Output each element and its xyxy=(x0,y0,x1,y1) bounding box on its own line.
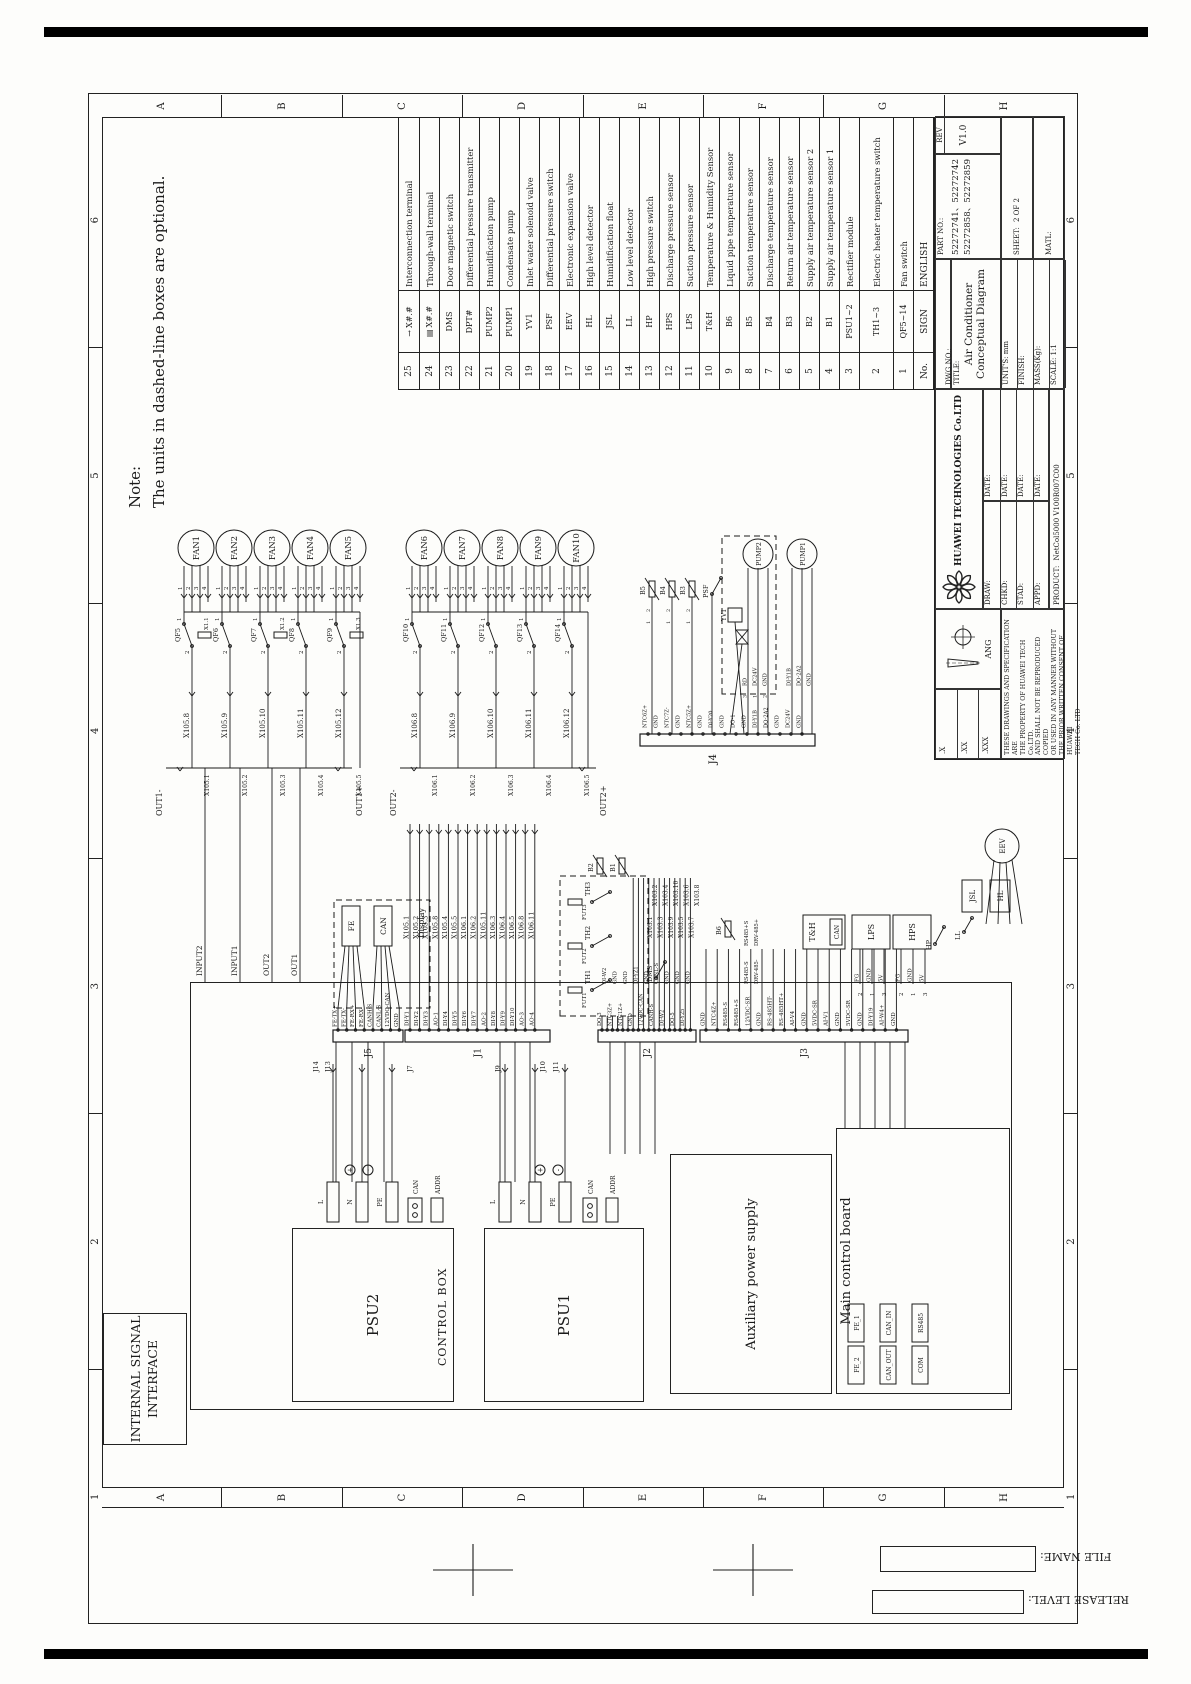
pin-label: RD xyxy=(743,678,749,686)
pin-label: 2 xyxy=(646,609,652,612)
terminal-label: X106.2 xyxy=(470,774,477,796)
pin-label: DI-Y7 xyxy=(472,1011,478,1026)
port-label: CAN_IN xyxy=(886,1311,893,1336)
terminal-label: X106.3 xyxy=(508,774,515,796)
pin-label: 2 xyxy=(261,651,267,655)
pin-label: DI-W2 xyxy=(659,1010,665,1026)
pin-label: 4 xyxy=(316,586,322,590)
pin-label: 1 xyxy=(443,618,449,622)
connector-label: J11 xyxy=(552,1061,560,1073)
wire-label: X106.1 xyxy=(460,916,468,939)
pin-label: NTC7Z- xyxy=(665,707,671,728)
pin-label: 5V xyxy=(920,974,926,982)
pin-label: DI-Y1B xyxy=(787,668,793,686)
component-label: EEV xyxy=(999,837,1007,853)
connector-label: J7 xyxy=(406,1065,414,1073)
sensor-label: B5 xyxy=(639,586,647,595)
switch-label: TH3 xyxy=(584,882,592,896)
pin-label: 2 xyxy=(185,651,191,655)
pin-label: CANH-S xyxy=(368,1003,374,1027)
pin-label: DI-Y19 xyxy=(869,1007,875,1026)
terminal-label: L xyxy=(317,1199,325,1204)
out-label: OUT2- xyxy=(389,789,398,816)
out-label: OUT1+ xyxy=(355,786,364,816)
port-label: CAN xyxy=(834,925,841,939)
wire-label: X103.6 xyxy=(683,884,690,906)
wire-label: X105.5 xyxy=(451,916,459,939)
pin-label: GND xyxy=(394,1013,400,1027)
pin-label: DO-3 xyxy=(597,1012,603,1026)
pin-label: DI-Y8 xyxy=(491,1011,497,1026)
pin-label: 1 xyxy=(405,618,411,622)
pin-label: 3 xyxy=(743,695,749,698)
wire-label: X105.11 xyxy=(479,912,487,939)
terminal-label: PE xyxy=(376,1197,384,1206)
pin-label: 1 xyxy=(753,695,759,698)
fan-label: FAN8 xyxy=(496,536,506,560)
switch-label: QF7 xyxy=(250,628,258,642)
pin-label: 2 xyxy=(224,587,230,591)
fuse-label: FUT3 xyxy=(582,904,588,920)
pin-label: 3 xyxy=(498,586,504,590)
pin-label: 2 xyxy=(186,587,192,591)
fan-label: FAN6 xyxy=(420,536,430,560)
pin-label: GND xyxy=(676,715,682,728)
pin-label: AO-4 xyxy=(529,1011,535,1027)
pin-label: RS485+S xyxy=(734,999,740,1026)
pin-label: AO-3 xyxy=(520,1011,526,1027)
pin-label: GND xyxy=(763,673,769,686)
pin-label: DI-Y4 xyxy=(443,1011,449,1026)
switch-label: QF12 xyxy=(478,624,486,642)
pin-label: - xyxy=(365,1168,373,1171)
terminal-label: X106.4 xyxy=(546,774,553,796)
terminal-label: X105.4 xyxy=(318,774,325,796)
terminal-label: X106.1 xyxy=(432,775,439,796)
switch-label: TH1 xyxy=(584,970,592,984)
pin-label: DO-5 xyxy=(670,1012,676,1026)
fan-label: FAN2 xyxy=(230,536,240,560)
pin-label: 1 xyxy=(406,587,412,591)
pin-label: DC24V xyxy=(753,667,759,686)
terminal-label: ADDR xyxy=(610,1175,617,1195)
io-label: INPUT1 xyxy=(230,945,239,976)
pin-label: FG xyxy=(855,974,861,982)
pin-label: AO-1 xyxy=(433,1012,439,1027)
pin-label: FE-TX- xyxy=(341,1008,347,1027)
pin-label: + xyxy=(537,1167,545,1173)
pin-label: DI-Y1 xyxy=(405,1011,411,1026)
pin-label: 2 xyxy=(686,609,692,612)
pin-label: AI-V1 xyxy=(824,1011,830,1027)
pin-label: RS485-S xyxy=(723,1002,729,1026)
pin-label: GND xyxy=(654,715,660,728)
pin-label: GND xyxy=(807,673,813,686)
bus-label: DRV-485- xyxy=(754,959,760,984)
bus-label: RS485+S xyxy=(744,920,750,946)
terminal-label: X105.10 xyxy=(259,709,267,738)
pin-label: 1 xyxy=(330,587,336,591)
pin-label: GND xyxy=(857,1012,863,1026)
sensor-label: B3 xyxy=(679,586,687,595)
pin-label: 5V xyxy=(879,974,885,982)
pin-label: 2 xyxy=(338,587,344,591)
fuse-label: FUT2 xyxy=(582,948,588,964)
component-label: JSL xyxy=(969,890,977,904)
pin-label: AI-W4+ xyxy=(880,1004,886,1027)
connector-label: J1 xyxy=(474,1048,484,1058)
pin-label: 5VDC-SR xyxy=(813,999,819,1026)
pin-label: GND xyxy=(628,1013,634,1026)
terminal-label: X105.11 xyxy=(297,709,305,738)
pin-label: DI-W2 xyxy=(602,968,608,984)
switch-label: QF13 xyxy=(516,624,524,642)
wire-label: X105.2 xyxy=(412,916,420,939)
terminal-label: L xyxy=(489,1199,497,1204)
pin-label: 1 xyxy=(253,618,259,622)
component-label: LL xyxy=(954,931,962,940)
pin-label: 1 xyxy=(481,618,487,622)
pin-label: DI-Y25 xyxy=(680,1009,686,1026)
pin-label: 3 xyxy=(923,992,929,996)
pin-label: 4 xyxy=(544,586,550,590)
wire-label: X106.2 xyxy=(470,916,478,939)
connector-label: J5 xyxy=(364,1048,374,1059)
fan-label: FAN7 xyxy=(458,536,468,560)
io-label: OUT2 xyxy=(262,954,271,976)
pin-label: 2 xyxy=(413,651,419,655)
pin-label: 4 xyxy=(354,586,360,590)
pump-label: PUMP2 xyxy=(756,542,763,566)
wire-label: X106.11 xyxy=(527,912,535,939)
switch-label: TH2 xyxy=(584,926,592,940)
scanned-schematic-page: { "note": {"heading": "Note:", "text": "… xyxy=(0,0,1191,1684)
pin-label: DI-YZ1 xyxy=(633,966,639,984)
pin-label: 1 xyxy=(444,587,450,591)
pin-label: 4 xyxy=(582,586,588,590)
pin-label: GND xyxy=(623,971,629,984)
switch-label: QF9 xyxy=(326,628,334,642)
terminal-label: X105.3 xyxy=(280,774,287,796)
pin-label: DI-Y6 xyxy=(462,1011,468,1026)
pin-label: GND xyxy=(908,968,914,982)
pin-label: 3 xyxy=(232,586,238,590)
pin-label: GND xyxy=(675,971,681,984)
pin-label: FG xyxy=(896,974,902,982)
pin-label: 4 xyxy=(278,586,284,590)
sensor-label: B1 xyxy=(609,863,617,872)
pin-label: GND xyxy=(757,1012,763,1026)
bus-label: RS485-S xyxy=(744,961,750,984)
terminal-label: X106.9 xyxy=(449,713,457,738)
pin-label: 12VDC-SR xyxy=(745,996,751,1026)
pin-label: DC24V xyxy=(786,709,792,728)
switch-label: QF8 xyxy=(288,628,296,642)
pin-label: 1 xyxy=(646,621,652,624)
out-label: OUT2+ xyxy=(599,786,608,816)
connector-label: J10 xyxy=(539,1061,547,1073)
schematic-wiring: FAN11234QF512X1.1X105.8X105.1FAN21234QF6… xyxy=(0,0,1191,1684)
switch-label: QF5 xyxy=(174,628,182,642)
pin-label: 1 xyxy=(215,618,221,622)
wire-label: X106.8 xyxy=(518,916,526,939)
fan-label: FAN5 xyxy=(344,536,354,560)
port-label: COM xyxy=(918,1357,925,1373)
terminal-label: X106.5 xyxy=(584,774,591,796)
pin-label: 2 xyxy=(666,609,672,612)
pin-label: AI-V4 xyxy=(790,1010,796,1027)
pin-label: AO-2 xyxy=(481,1012,487,1027)
pin-label: 3 xyxy=(882,992,888,996)
connector-label: J2 xyxy=(643,1048,653,1058)
wire-label: X103.1 xyxy=(647,917,654,938)
terminal-label: X106.11 xyxy=(525,709,533,738)
pin-label: 1 xyxy=(177,618,183,622)
pin-label: GND xyxy=(665,971,671,984)
pin-label: 4 xyxy=(430,586,436,590)
port-label: CAN xyxy=(379,917,388,935)
sensor-label: B4 xyxy=(659,586,667,595)
pin-label: DO-2A2 xyxy=(797,665,803,686)
pin-label: 1 xyxy=(557,618,563,622)
pin-label: 3 xyxy=(308,586,314,590)
connector-label: J4 xyxy=(708,754,719,765)
port-label: FE_1 xyxy=(854,1315,861,1330)
pin-label: 2 xyxy=(452,587,458,591)
pin-label: 2 xyxy=(565,651,571,655)
pin-label: NTC1Z+ xyxy=(618,1003,624,1026)
wire-label: X106.5 xyxy=(508,916,516,939)
pin-label: 1 xyxy=(519,618,525,622)
pin-label: GND xyxy=(775,715,781,728)
pin-label: 2 xyxy=(489,651,495,655)
pin-label: RS-485HT- xyxy=(768,996,774,1026)
pin-label: CANL-S xyxy=(654,963,660,984)
pin-label: 2 xyxy=(337,651,343,655)
wire-label: X105.3 xyxy=(422,916,430,939)
terminal-label: X106.10 xyxy=(487,709,495,738)
port-label: CAN_OUT xyxy=(886,1349,893,1380)
wire-label: X103.4 xyxy=(663,884,670,906)
pin-label: DI-Y3 xyxy=(424,1011,430,1026)
pin-label: GND xyxy=(685,971,691,984)
pin-label: 1 xyxy=(329,618,335,622)
io-label: INPUT2 xyxy=(195,945,204,976)
terminal-label: N xyxy=(346,1199,354,1205)
pin-label: GND xyxy=(835,1012,841,1026)
pin-label: 1 xyxy=(520,587,526,591)
pin-label: 2 xyxy=(299,651,305,655)
pin-label: 1 xyxy=(292,587,298,591)
wire-label: X105.1 xyxy=(403,916,411,939)
pin-label: RS-485HT+ xyxy=(779,992,785,1026)
terminal-label: X105.2 xyxy=(242,774,249,796)
pin-label: DI-Y2 xyxy=(414,1011,420,1026)
pin-label: 2 xyxy=(300,587,306,591)
terminal-label: X105.12 xyxy=(335,709,343,738)
fan-label: FAN9 xyxy=(534,536,544,560)
wire-label: X103.10 xyxy=(673,881,680,906)
fan-label: FAN10 xyxy=(572,533,582,563)
wire-label: X105.8 xyxy=(431,916,439,939)
switch-label: PSF xyxy=(702,584,710,598)
terminal-label: CAN xyxy=(588,1180,595,1194)
pin-label: 12VDC-CAN xyxy=(639,993,645,1026)
switch-label: QF14 xyxy=(554,624,562,642)
connector-label: J13 xyxy=(324,1061,332,1073)
pin-label: 2 xyxy=(262,587,268,591)
pin-label: 1 xyxy=(216,587,222,591)
pin-label: DI-Y5 xyxy=(453,1011,459,1026)
pin-label: 2 xyxy=(414,587,420,591)
pin-label: 1 xyxy=(686,621,692,624)
sensor-label: B2 xyxy=(587,863,595,872)
wire-label: X106.3 xyxy=(489,916,497,939)
pin-label: GND xyxy=(801,1012,807,1026)
pin-label: DI-Y9 xyxy=(501,1011,507,1026)
pin-label: 3 xyxy=(460,586,466,590)
terminal-label: X105.9 xyxy=(221,713,229,738)
pin-label: 2 xyxy=(223,651,229,655)
pin-label: GND xyxy=(701,1012,707,1026)
pin-label: NTC3Z+ xyxy=(607,1003,613,1026)
pin-label: 3 xyxy=(346,586,352,590)
switch-label: DMS xyxy=(646,966,654,982)
pin-label: NTC6Z+ xyxy=(643,705,649,728)
connector-label: J3 xyxy=(800,1048,810,1059)
terminal-label: X105.8 xyxy=(183,713,191,738)
terminal-label: X106.8 xyxy=(411,713,419,738)
connector-label: J9 xyxy=(494,1065,502,1073)
port-label: FE xyxy=(347,921,356,932)
pin-label: 3 xyxy=(194,586,200,590)
switch-label: HP xyxy=(925,939,933,950)
pin-label: 2 xyxy=(899,993,905,997)
wire-label: X103.8 xyxy=(694,884,701,906)
fuse-label: X1.1 xyxy=(204,617,210,630)
fan-label: FAN1 xyxy=(192,536,202,560)
switch-label: QF11 xyxy=(440,624,448,642)
wire-label: X103.9 xyxy=(668,916,675,938)
component-label: YV1 xyxy=(721,609,728,622)
wire-label: X103.5 xyxy=(678,916,685,938)
fuse-label: X1.2 xyxy=(280,617,286,630)
connector-label: J14 xyxy=(312,1061,320,1073)
wire-label: X103.7 xyxy=(689,916,696,938)
fuse-label: FUT1 xyxy=(582,992,588,1008)
switch-label: QF10 xyxy=(402,624,410,642)
component-label: HL xyxy=(997,890,1005,901)
pin-label: DI-Y10 xyxy=(510,1007,516,1026)
sensor-label: B6 xyxy=(715,926,723,935)
terminal-label: PE xyxy=(549,1197,557,1206)
switch-label: QF6 xyxy=(212,628,220,642)
pin-label: CANH-S xyxy=(649,1003,655,1026)
wire-label: X105.4 xyxy=(441,916,449,939)
pin-label: + xyxy=(347,1167,355,1173)
fan-label: FAN4 xyxy=(306,536,316,560)
pin-label: 1 xyxy=(911,993,917,997)
pin-label: GND xyxy=(867,968,873,982)
pin-label: 2 xyxy=(763,695,769,698)
pin-label: 2 xyxy=(527,651,533,655)
pin-label: 3 xyxy=(574,586,580,590)
pin-label: 3 xyxy=(422,586,428,590)
port-label: FE_2 xyxy=(854,1357,861,1373)
fuse-label: X1.3 xyxy=(356,617,362,630)
pump-label: PUMP1 xyxy=(800,542,807,566)
terminal-label: N xyxy=(519,1199,527,1205)
pin-label: 3 xyxy=(270,586,276,590)
component-label: T&H xyxy=(808,922,817,941)
pin-label: 1 xyxy=(291,618,297,622)
pin-label: 4 xyxy=(468,586,474,590)
drawing-sheet: 123456 123456 ABCDEFGH ABCDEFGH Note: Th… xyxy=(0,0,1191,1684)
terminal-label: X106.12 xyxy=(563,709,571,738)
pin-label: 2 xyxy=(566,587,572,591)
pin-label: DO-2A2 xyxy=(764,707,770,728)
bus-label: DRV-485+ xyxy=(754,919,760,946)
port-label: RS485 xyxy=(918,1313,925,1333)
pin-label: 1 xyxy=(482,587,488,591)
pin-label: DI-Y20 xyxy=(709,711,715,728)
pin-label: 4 xyxy=(506,586,512,590)
pin-label: GND xyxy=(613,971,619,984)
pin-label: 5VDC-SR xyxy=(846,999,852,1026)
component-label: HPS xyxy=(908,923,917,941)
out-label: OUT1- xyxy=(155,789,164,816)
pin-label: 12VDC-CAN xyxy=(385,992,391,1027)
fan-label: FAN3 xyxy=(268,536,278,560)
pin-label: GND xyxy=(891,1012,897,1026)
terminal-label: CAN xyxy=(413,1180,420,1194)
pin-label: 2 xyxy=(451,651,457,655)
pin-label: 4 xyxy=(240,586,246,590)
pin-label: FE-RX- xyxy=(359,1007,365,1027)
pin-label: FE-TX+ xyxy=(333,1005,339,1027)
pin-label: 2 xyxy=(490,587,496,591)
pin-label: NTC4Z+ xyxy=(712,1001,718,1026)
wire-label: X103.2 xyxy=(652,884,659,906)
pin-label: 1 xyxy=(870,993,876,997)
wire-label: X103.3 xyxy=(657,916,664,938)
pin-label: - xyxy=(555,1168,563,1171)
terminal-label: ADDR xyxy=(435,1175,442,1195)
pin-label: 2 xyxy=(528,587,534,591)
pin-label: 3 xyxy=(536,586,542,590)
component-label: LPS xyxy=(867,924,876,940)
pin-label: 1 xyxy=(558,587,564,591)
io-label: OUT1 xyxy=(290,954,299,976)
pin-label: 4 xyxy=(202,586,208,590)
pin-label: 1 xyxy=(178,587,184,591)
pin-label: 1 xyxy=(254,587,260,591)
pin-label: GND xyxy=(698,715,704,728)
wire-label: X106.4 xyxy=(499,916,507,939)
pin-label: GND xyxy=(720,715,726,728)
pin-label: 1 xyxy=(666,621,672,624)
pin-label: 2 xyxy=(858,993,864,997)
